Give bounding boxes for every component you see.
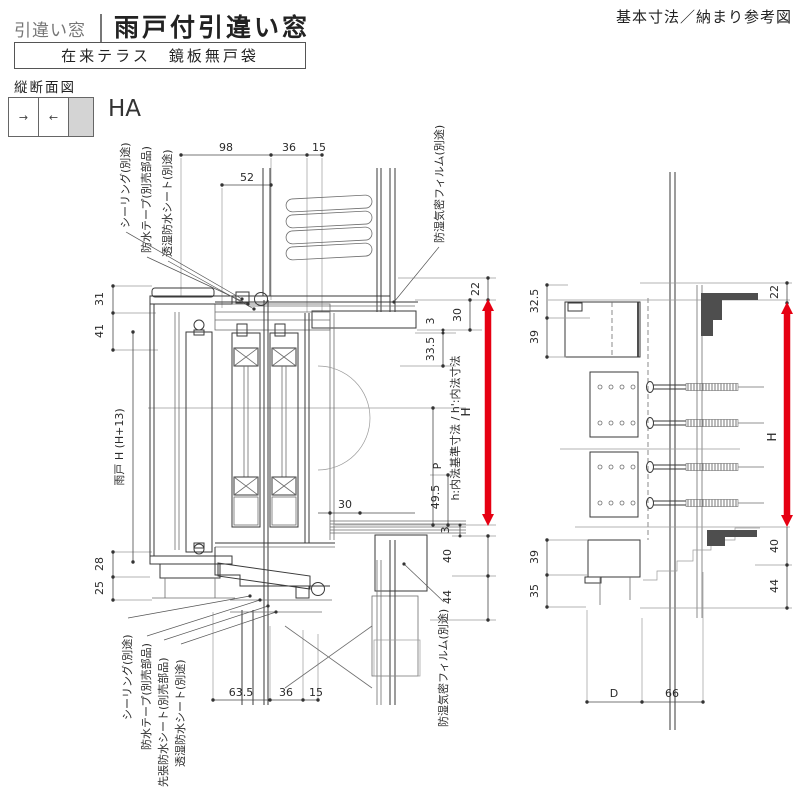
insulation-coil — [286, 195, 373, 260]
arrow-left-icon: ← — [49, 111, 58, 124]
dim-right-22: 22 — [469, 282, 482, 296]
dim-top-52: 52 — [240, 171, 254, 184]
shutter-rail-box — [565, 302, 640, 357]
exterior-sash — [232, 333, 260, 527]
label-pre-applied-sheet-bottom: 先張防水シート(別売部品) — [156, 657, 170, 787]
sliding-pane-right: ← — [39, 98, 69, 136]
label-breathable-sheet-bottom: 透湿防水シート(別途) — [173, 659, 187, 767]
floor-insulation-block — [375, 535, 427, 591]
interior-sash — [270, 333, 298, 527]
dim-left-31: 31 — [93, 292, 106, 306]
dim-shutter-height: 雨戸 H (H+13) — [113, 408, 126, 485]
dim-right-3-bottom: 3 — [439, 527, 452, 534]
dim-left-41: 41 — [93, 324, 106, 338]
header: 引違い窓 雨戸付引違い窓 — [14, 8, 310, 44]
screw — [647, 418, 765, 429]
head-frame — [215, 292, 418, 336]
dim-right-49-5: 49.5 — [429, 485, 442, 510]
upper-wall — [263, 168, 395, 312]
dim-top-36: 36 — [282, 141, 296, 154]
lintel-hatch — [312, 311, 416, 328]
sill-frame — [215, 543, 420, 688]
inner-dimension-axis-label: h:内法基準寸法 / h':内法寸法 — [448, 355, 462, 500]
dim-left-28: 28 — [93, 557, 106, 571]
sliding-pane-left: → — [9, 98, 39, 136]
side-dim-66: 66 — [665, 687, 679, 700]
dim-top-15: 15 — [312, 141, 326, 154]
shutter-roller-top — [194, 320, 204, 330]
dim-top-98: 98 — [219, 141, 233, 154]
storm-shutter-panel — [186, 320, 212, 554]
label-waterproof-tape-bottom: 防水テープ(別売部品) — [139, 643, 153, 750]
height-arrow-main — [482, 299, 494, 526]
window-type-label: HA — [108, 96, 141, 122]
page-title: 雨戸付引違い窓 — [114, 8, 310, 44]
dim-bottom-15: 15 — [309, 686, 323, 699]
dim-right-P: P — [431, 462, 444, 469]
head-bracket — [701, 293, 758, 336]
dim-right-30: 30 — [451, 308, 464, 322]
dim-left-25: 25 — [93, 581, 106, 595]
side-dim-32-5: 32.5 — [528, 289, 541, 314]
window-type-icon: → ← — [8, 97, 94, 137]
subtitle-box: 在来テラス 鏡板無戸袋 — [14, 42, 306, 69]
title-divider — [100, 14, 102, 44]
side-dimensions: 32.5 39 39 35 22 40 44 H D 66 — [528, 281, 792, 703]
fixing-screws — [647, 382, 765, 509]
label-vapor-film-top: 防湿気密フィルム(別途) — [432, 125, 446, 243]
side-dim-39-bottom: 39 — [528, 550, 541, 564]
reference-note: 基本寸法／納まり参考図 — [616, 6, 792, 27]
sealing-rod-bottom — [312, 583, 325, 596]
side-dim-39-top: 39 — [528, 330, 541, 344]
category-label: 引違い窓 — [14, 16, 86, 44]
height-arrow-label-main: H — [459, 407, 473, 416]
dim-inner-30: 30 — [338, 498, 352, 511]
screw — [647, 382, 765, 393]
dim-right-33-5: 33.5 — [424, 337, 437, 362]
dim-right-44: 44 — [441, 590, 454, 604]
dim-right-40: 40 — [441, 549, 454, 563]
side-dim-40: 40 — [768, 539, 781, 553]
side-dim-44: 44 — [768, 579, 781, 593]
sealing-rod-top — [255, 293, 268, 306]
arrow-right-icon: → — [19, 111, 28, 124]
side-sill-assembly — [585, 528, 760, 605]
section-view-label: 縦断面図 — [14, 76, 76, 96]
dim-right-3-top: 3 — [424, 318, 437, 325]
label-waterproof-tape-top: 防水テープ(別売部品) — [139, 146, 153, 253]
screw — [647, 498, 765, 509]
sill-bracket — [707, 530, 757, 546]
catalog-page: 98 52 36 15 63.5 36 15 31 41 28 25 雨戸 H … — [0, 0, 800, 800]
handle-swing-arc — [318, 366, 370, 470]
label-sealing-bottom: シーリング(別途) — [120, 634, 134, 720]
side-dim-D: D — [610, 687, 618, 700]
dim-bottom-36: 36 — [279, 686, 293, 699]
furring-blocks — [590, 372, 638, 517]
height-arrow-label-side: H — [765, 432, 779, 441]
height-arrow-side — [781, 302, 793, 527]
side-dim-22: 22 — [768, 285, 781, 299]
side-section-drawing — [548, 172, 790, 730]
dim-bottom-63-5: 63.5 — [229, 686, 254, 699]
label-vapor-film-bottom: 防湿気密フィルム(別途) — [436, 609, 450, 727]
side-dim-35: 35 — [528, 584, 541, 598]
screw — [647, 462, 765, 473]
label-breathable-sheet-top: 透湿防水シート(別途) — [160, 149, 174, 257]
shutter-storage-pane — [69, 98, 93, 136]
label-sealing-top: シーリング(別途) — [118, 142, 132, 228]
main-section-drawing — [150, 168, 466, 705]
